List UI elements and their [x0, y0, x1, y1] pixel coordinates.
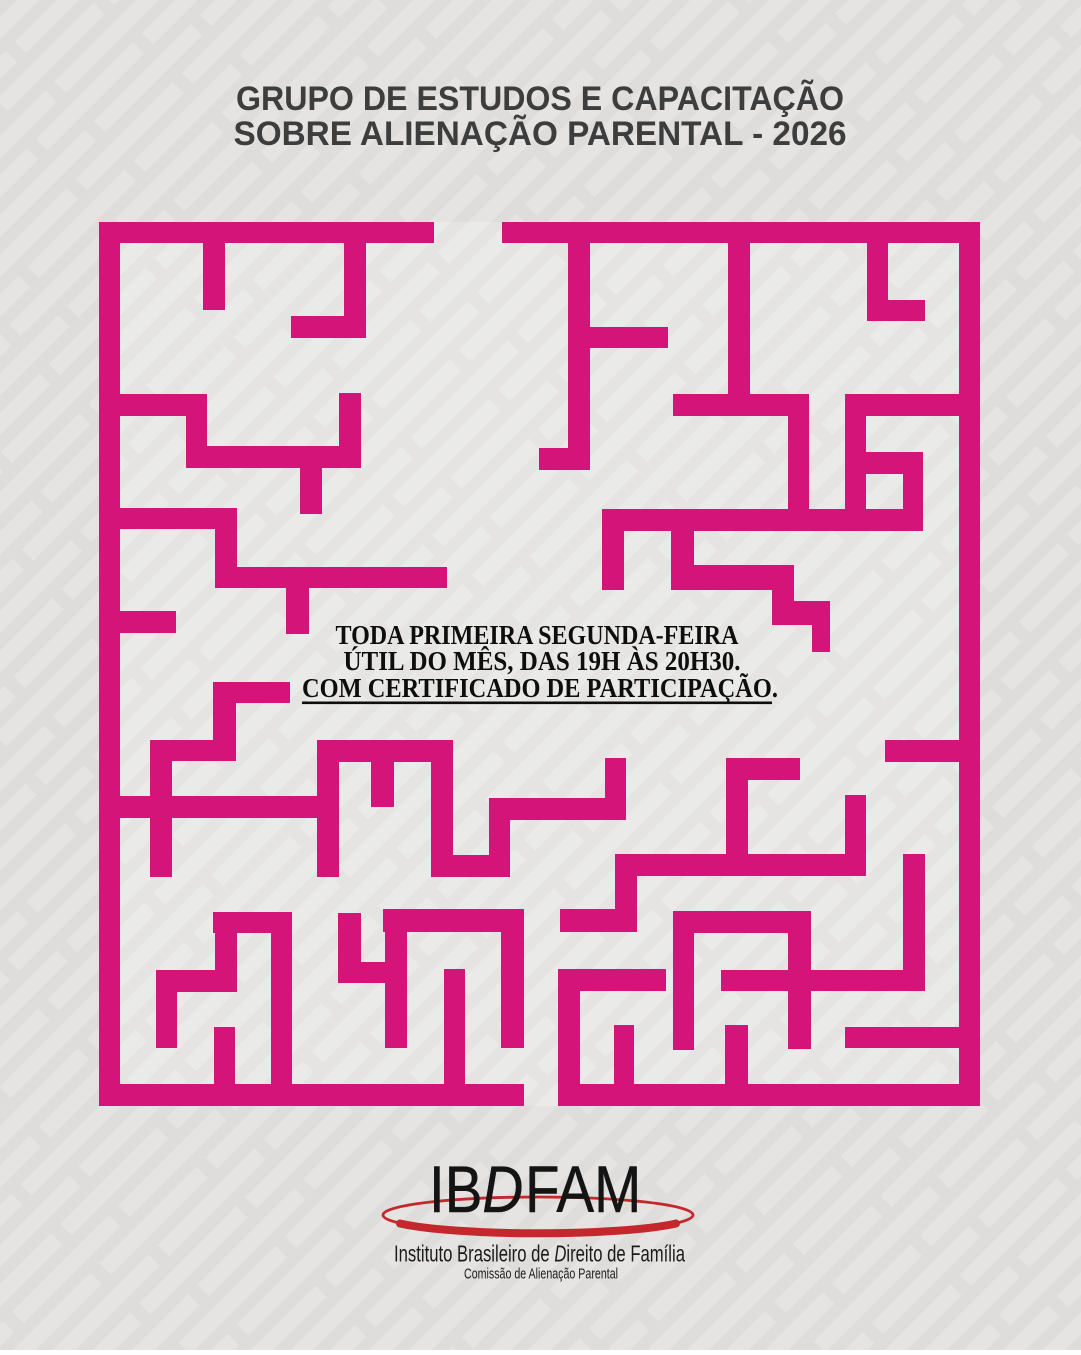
svg-text:FAM: FAM: [525, 1153, 641, 1227]
svg-text:GRUPO DE ESTUDOS E CAPACITAÇÃO: GRUPO DE ESTUDOS E CAPACITAÇÃO: [236, 80, 844, 118]
svg-text:Comissão de Alienação Parental: Comissão de Alienação Parental: [464, 1267, 618, 1283]
svg-text:D: D: [482, 1153, 523, 1227]
svg-text:IB: IB: [429, 1153, 482, 1227]
svg-text:SOBRE ALIENAÇÃO PARENTAL - 202: SOBRE ALIENAÇÃO PARENTAL - 2026: [234, 115, 847, 153]
svg-text:Instituto Brasileiro de Direit: Instituto Brasileiro de Direito de Famíl…: [394, 1241, 686, 1267]
svg-text:COM CERTIFICADO DE PARTICIPAÇÃ: COM CERTIFICADO DE PARTICIPAÇÃO.: [302, 673, 778, 703]
svg-text:ÚTIL DO MÊS, DAS 19H ÀS 20H30.: ÚTIL DO MÊS, DAS 19H ÀS 20H30.: [344, 646, 741, 676]
